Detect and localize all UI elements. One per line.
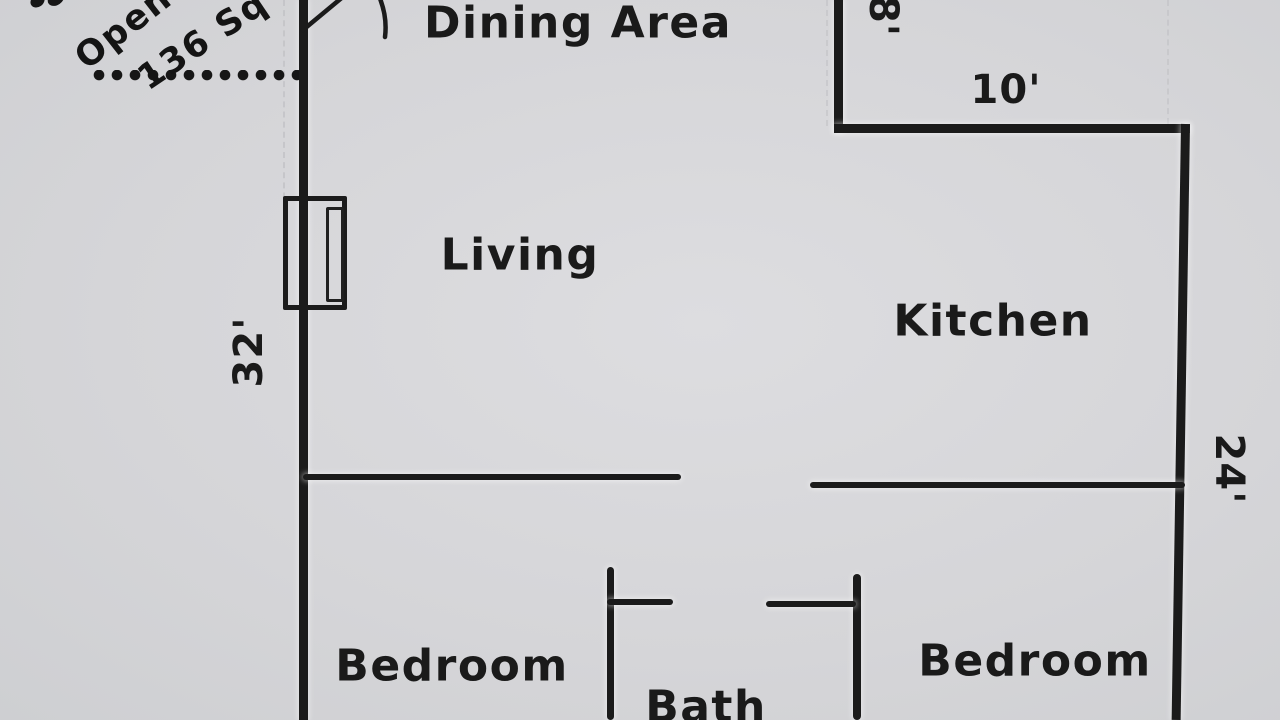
room-label-kitchen: Kitchen [893, 296, 1092, 347]
room-label-living: Living [441, 230, 600, 281]
dimension-8ft: 8' [860, 0, 906, 37]
room-label-bath: Bath [645, 682, 767, 720]
dimension-24ft: 24' [1206, 434, 1252, 505]
room-label-bedroom-right: Bedroom [918, 636, 1151, 687]
room-label-dining-area: Dining Area [424, 0, 732, 49]
door-swing-symbol [0, 0, 1280, 720]
dimension-32ft: 32' [226, 317, 272, 388]
floor-plan-sketch: Open 136 Sq Dining Area Living Kitchen B… [0, 0, 1280, 720]
room-label-bedroom-left: Bedroom [335, 641, 568, 692]
dimension-10ft: 10' [971, 67, 1042, 113]
